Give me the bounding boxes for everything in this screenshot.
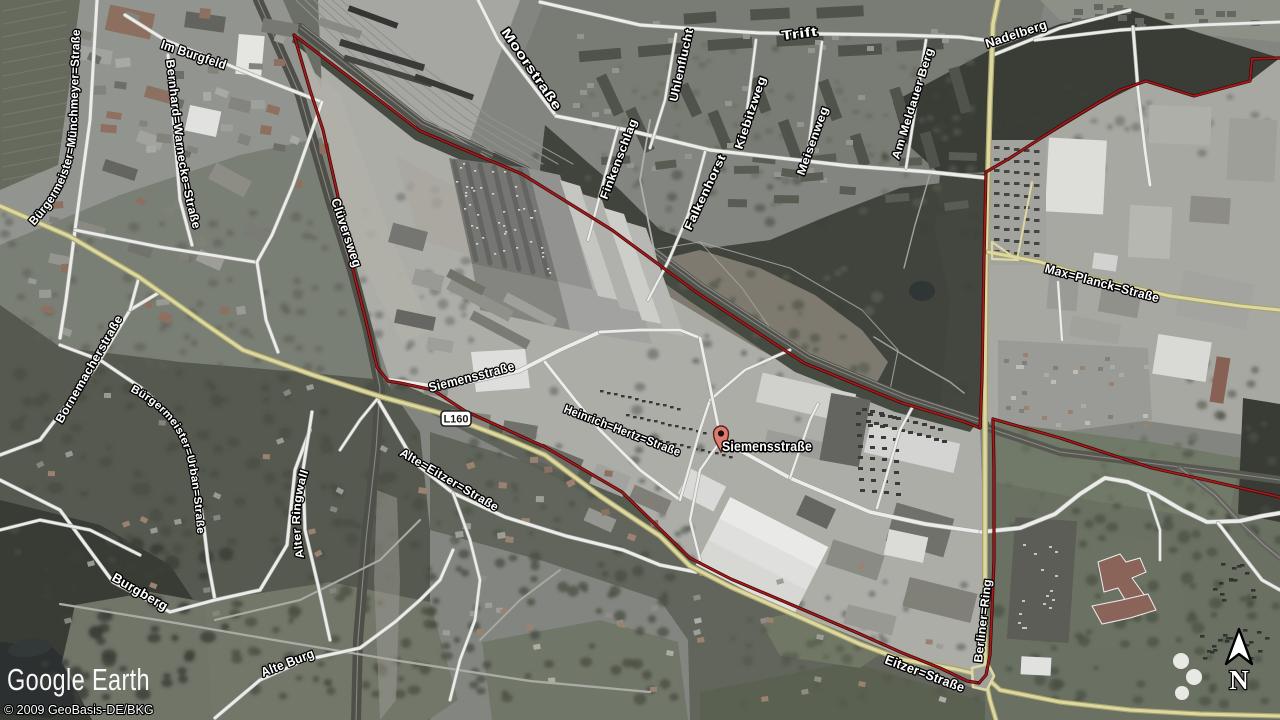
svg-text:N: N <box>1229 665 1249 695</box>
svg-text:Google Earth: Google Earth <box>7 662 150 697</box>
svg-text:© 2009 GeoBasis-DE/BKG: © 2009 GeoBasis-DE/BKG <box>4 703 154 717</box>
